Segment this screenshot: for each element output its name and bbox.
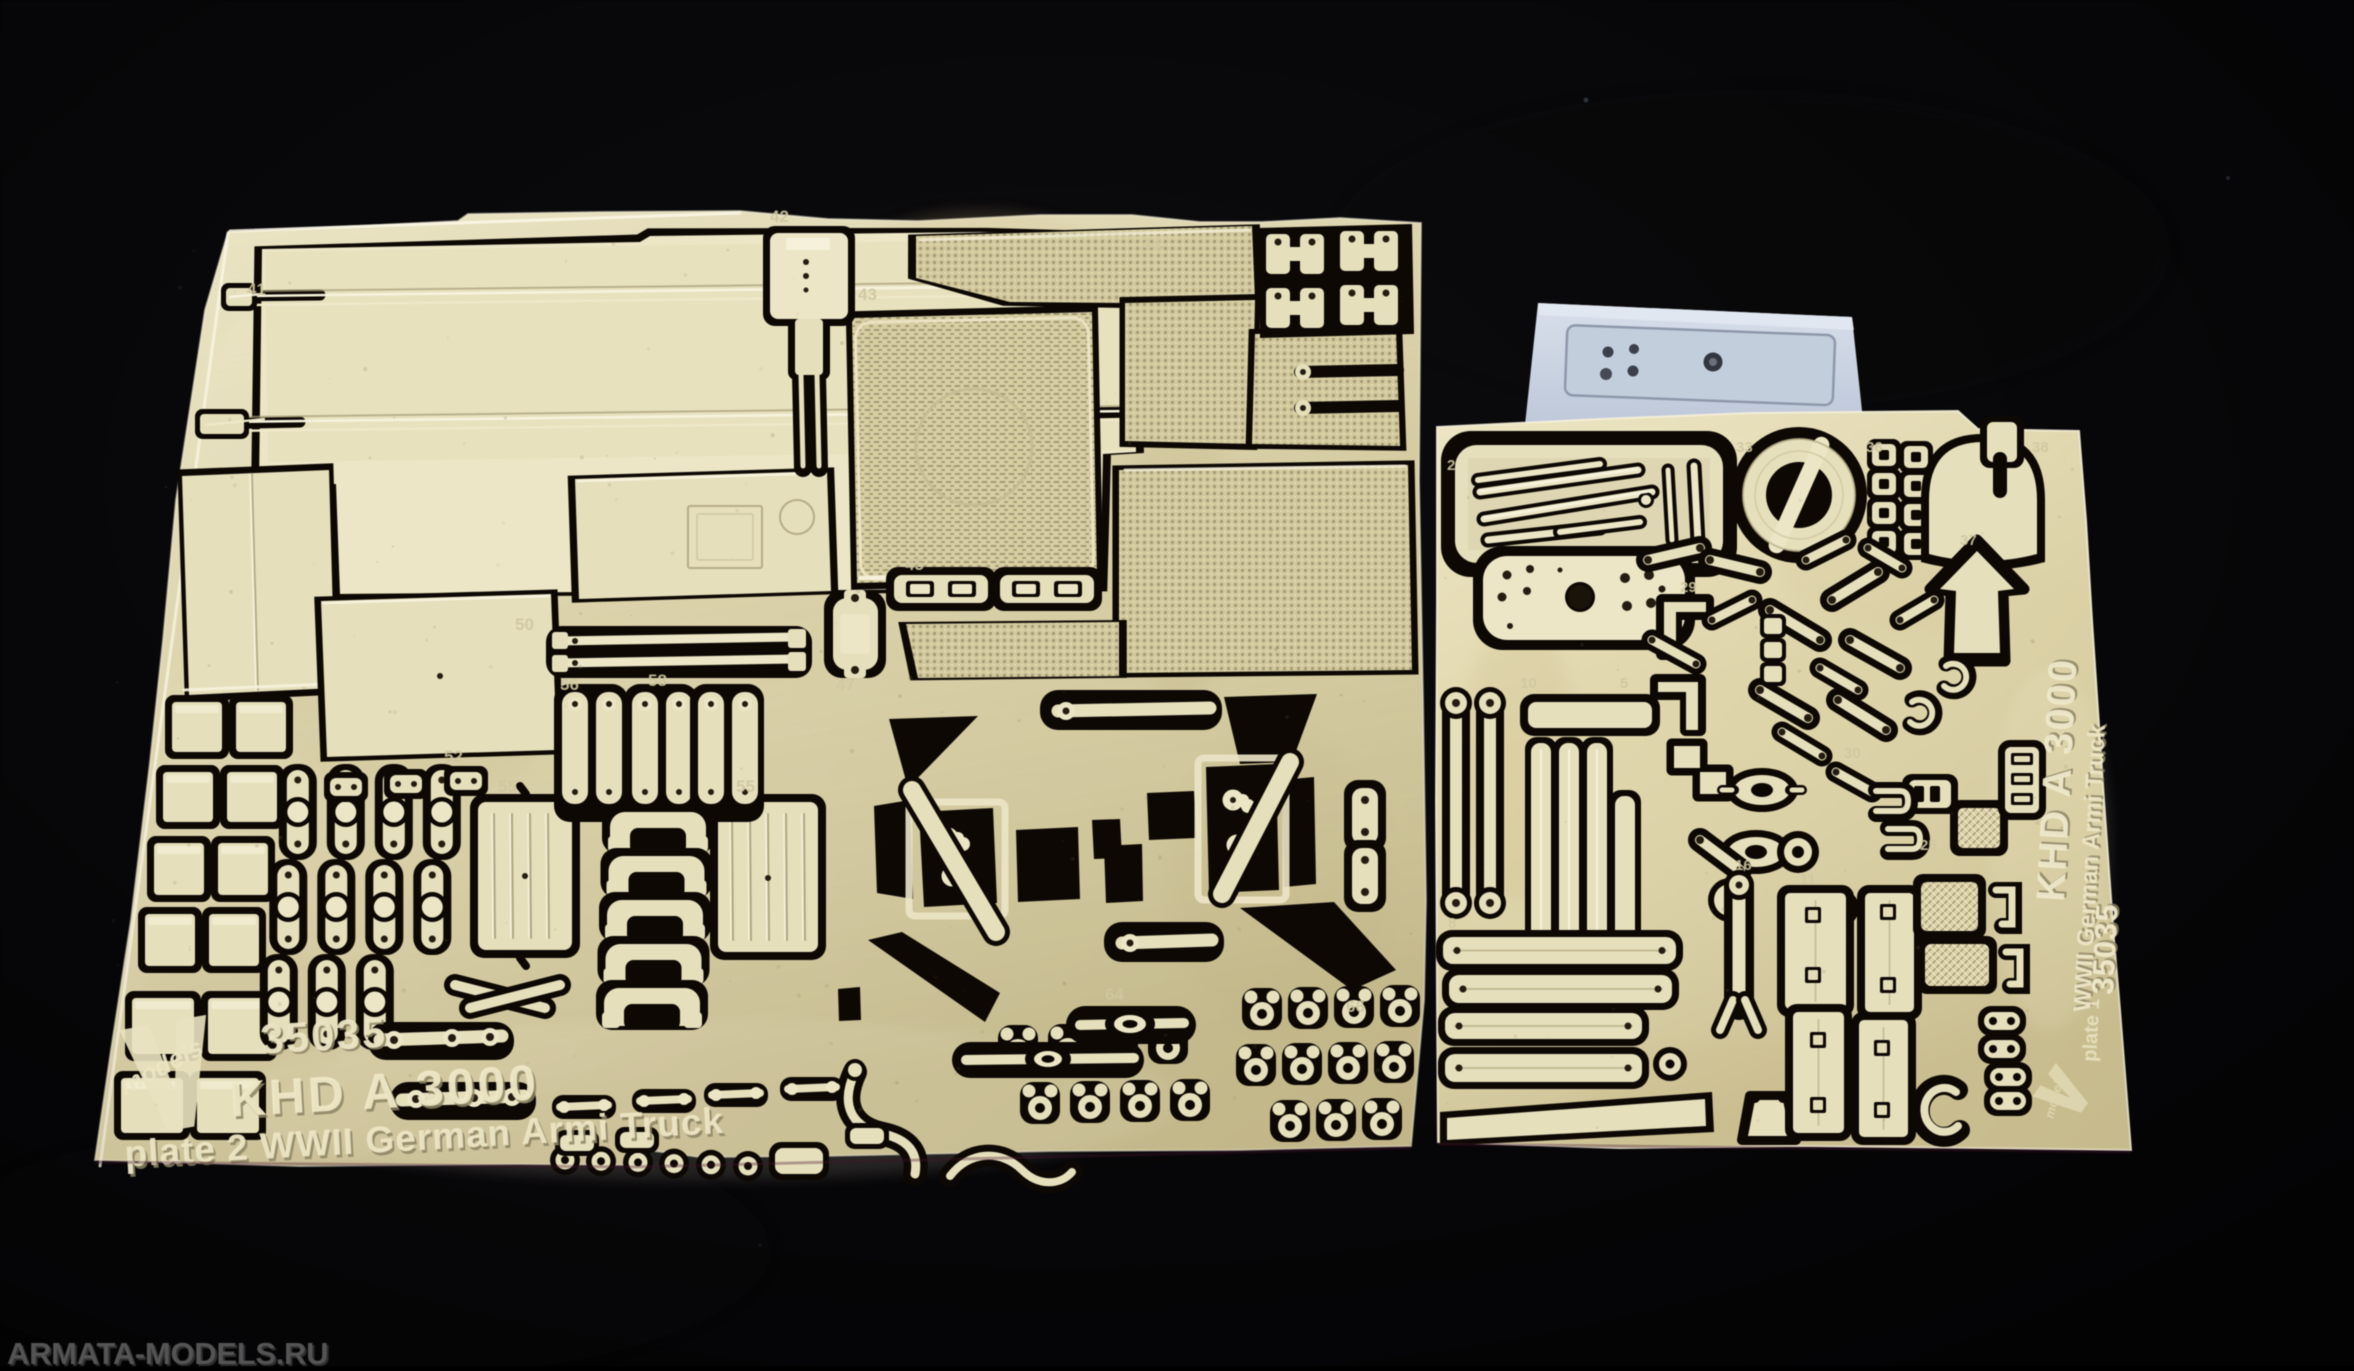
- svg-text:41: 41: [247, 280, 266, 299]
- svg-text:64: 64: [1105, 985, 1124, 1004]
- svg-text:50: 50: [515, 615, 534, 634]
- svg-text:59: 59: [1096, 767, 1115, 786]
- svg-text:25: 25: [1920, 837, 1937, 854]
- svg-text:35035: 35035: [2085, 902, 2125, 995]
- svg-text:66: 66: [1346, 997, 1365, 1016]
- svg-text:37: 37: [1960, 532, 1977, 549]
- svg-text:5: 5: [1620, 675, 1628, 692]
- svg-text:38: 38: [2032, 439, 2049, 456]
- svg-text:56: 56: [560, 675, 579, 694]
- svg-text:47: 47: [836, 675, 855, 694]
- svg-text:8: 8: [1448, 915, 1456, 932]
- svg-text:16: 16: [1735, 857, 1752, 874]
- svg-text:42: 42: [770, 207, 789, 226]
- svg-text:30: 30: [1844, 745, 1861, 762]
- svg-text:29: 29: [1680, 579, 1697, 596]
- svg-text:55: 55: [736, 777, 755, 796]
- svg-text:plate 1: plate 1: [2079, 998, 2104, 1062]
- svg-text:52: 52: [444, 747, 463, 766]
- svg-text:35035: 35035: [259, 1009, 388, 1063]
- svg-text:11: 11: [1800, 871, 1816, 888]
- svg-text:36: 36: [1866, 439, 1883, 456]
- svg-text:58: 58: [648, 671, 667, 690]
- svg-text:10: 10: [1520, 675, 1537, 692]
- svg-text:43: 43: [858, 285, 877, 304]
- svg-text:33: 33: [1736, 439, 1753, 456]
- svg-text:2: 2: [1447, 457, 1455, 474]
- svg-text:55: 55: [498, 777, 517, 796]
- svg-text:44: 44: [1142, 235, 1161, 254]
- svg-text:45: 45: [905, 555, 924, 574]
- svg-text:ARMATA-MODELS.RU: ARMATA-MODELS.RU: [7, 1336, 328, 1366]
